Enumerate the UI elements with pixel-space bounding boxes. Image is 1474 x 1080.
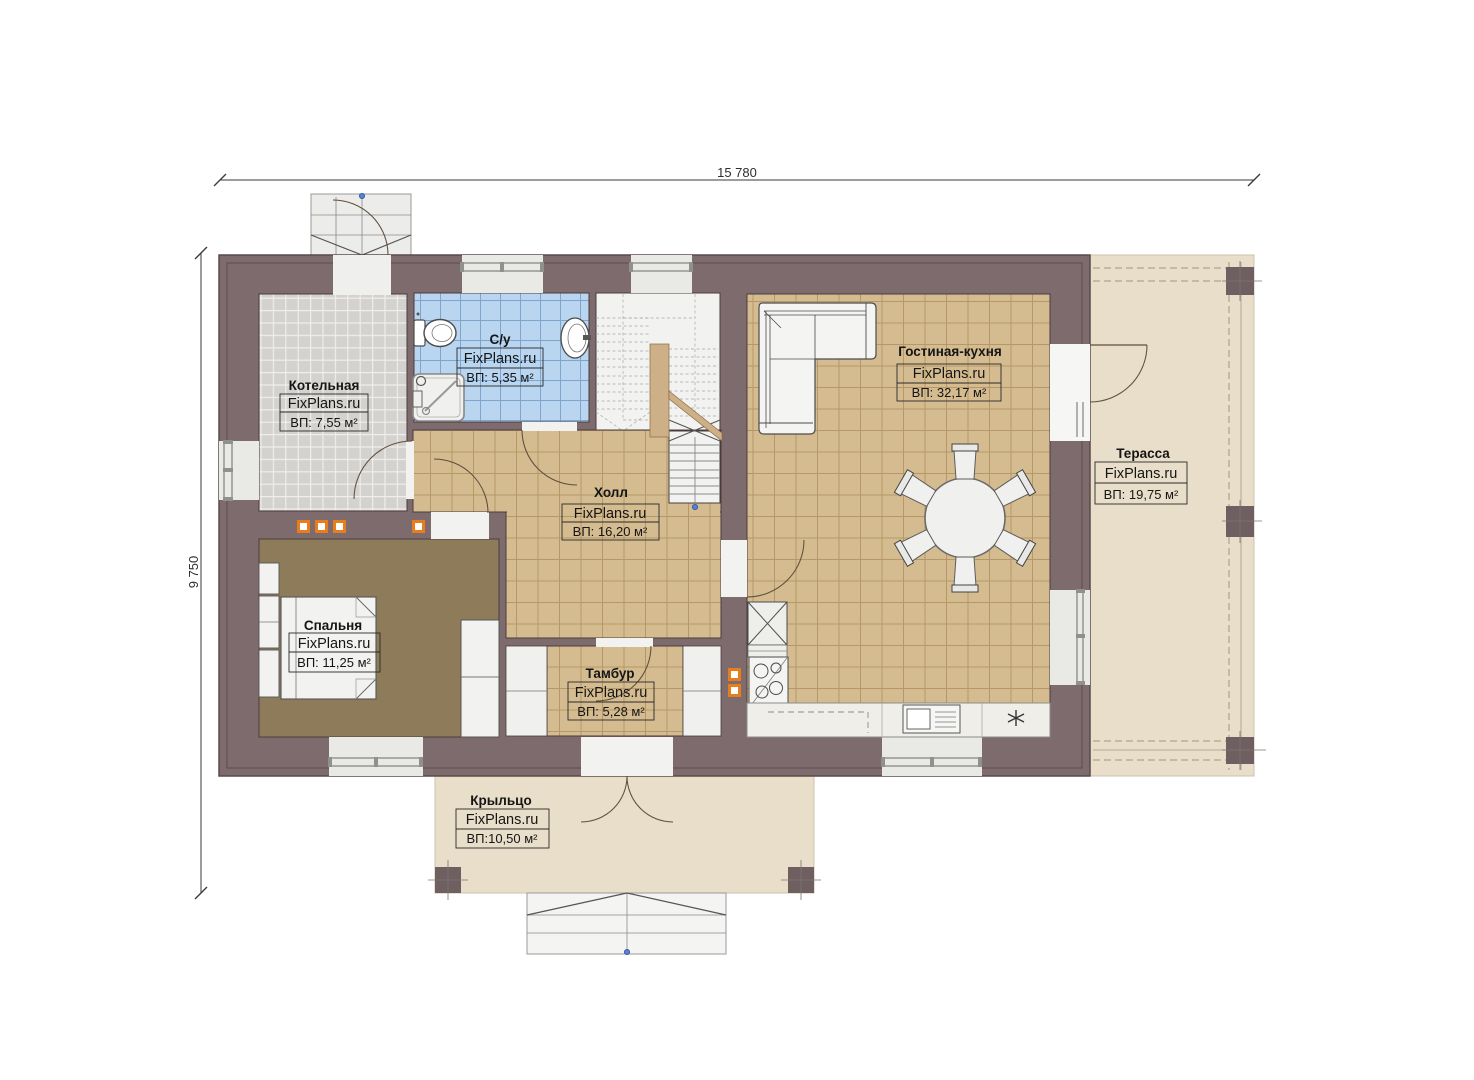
svg-text:FixPlans.ru: FixPlans.ru (574, 506, 647, 522)
svg-text:Гостиная-кухня: Гостиная-кухня (898, 344, 1001, 359)
svg-text:FixPlans.ru: FixPlans.ru (913, 366, 986, 382)
svg-text:Крыльцо: Крыльцо (470, 793, 531, 808)
svg-text:FixPlans.ru: FixPlans.ru (464, 351, 537, 367)
svg-text:Котельная: Котельная (289, 378, 360, 393)
svg-text:ВП: 19,75 м²: ВП: 19,75 м² (1104, 487, 1179, 502)
svg-text:ВП: 5,35 м²: ВП: 5,35 м² (466, 370, 534, 385)
svg-text:FixPlans.ru: FixPlans.ru (288, 396, 361, 412)
svg-text:ВП:10,50 м²: ВП:10,50 м² (466, 831, 538, 846)
svg-text:9 750: 9 750 (186, 556, 201, 589)
svg-text:Тамбур: Тамбур (586, 666, 635, 681)
svg-text:ВП: 32,17 м²: ВП: 32,17 м² (912, 385, 987, 400)
svg-text:ВП: 7,55 м²: ВП: 7,55 м² (290, 415, 358, 430)
svg-text:ВП: 16,20 м²: ВП: 16,20 м² (573, 524, 648, 539)
svg-text:Терасса: Терасса (1116, 446, 1170, 461)
svg-text:FixPlans.ru: FixPlans.ru (466, 812, 539, 828)
svg-text:С/у: С/у (489, 332, 511, 347)
svg-text:15 780: 15 780 (717, 165, 757, 180)
svg-text:Спальня: Спальня (304, 618, 362, 633)
svg-text:FixPlans.ru: FixPlans.ru (575, 685, 648, 701)
svg-text:Холл: Холл (594, 485, 628, 500)
svg-text:ВП: 11,25 м²: ВП: 11,25 м² (297, 655, 371, 670)
svg-text:FixPlans.ru: FixPlans.ru (1105, 466, 1178, 482)
svg-text:ВП: 5,28 м²: ВП: 5,28 м² (577, 704, 645, 719)
svg-text:FixPlans.ru: FixPlans.ru (298, 636, 371, 652)
